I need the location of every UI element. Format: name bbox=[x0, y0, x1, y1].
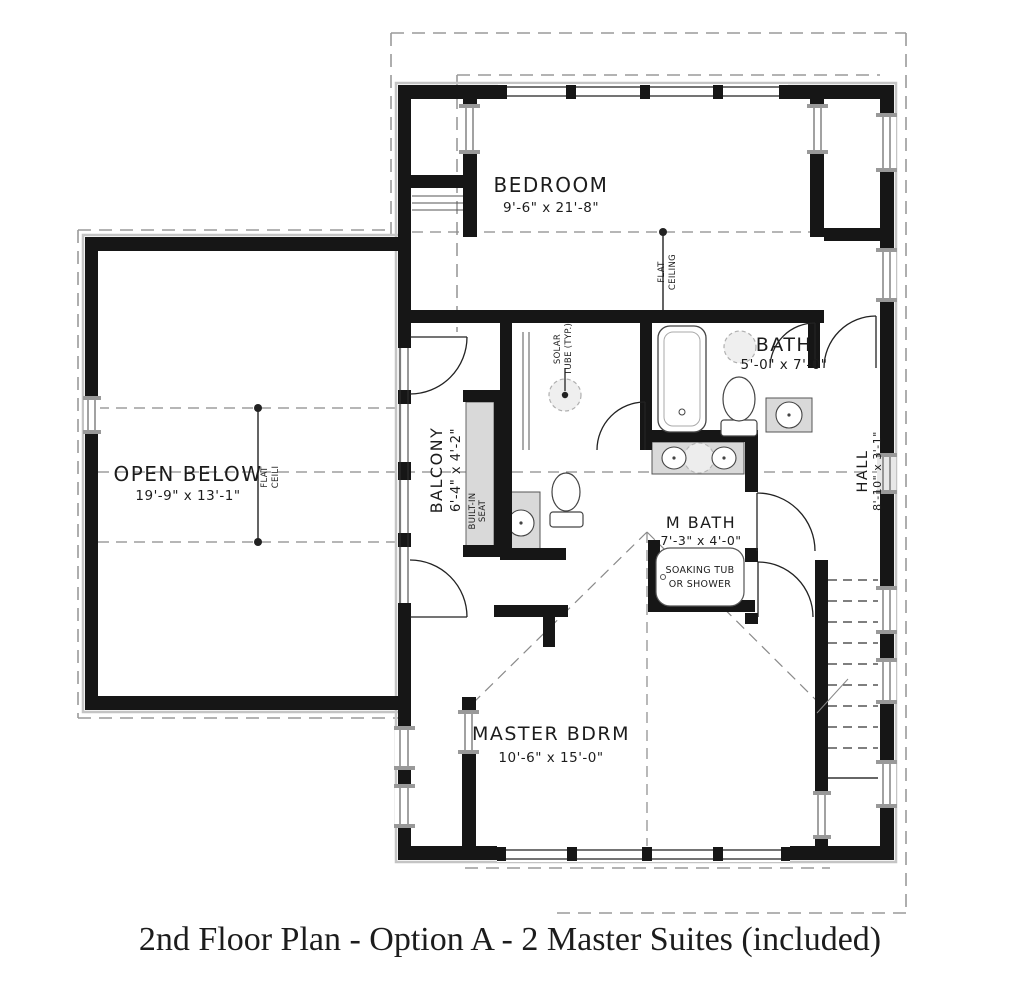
bedroom-dims: 9'-6" x 21'-8" bbox=[503, 200, 599, 216]
balcony-dims: 6'-4" x 4'-2" bbox=[449, 428, 464, 512]
window bbox=[876, 113, 897, 172]
toilet-symbol bbox=[550, 473, 583, 527]
window bbox=[876, 760, 897, 808]
m-bath-dims: 7'-3" x 4'-0" bbox=[660, 533, 741, 548]
window bbox=[394, 726, 415, 770]
floor-plan-page: BEDROOM 9'-6" x 21'-8" BATH 5'-0" x 7'-0… bbox=[0, 0, 1024, 997]
mbath-double-vanity bbox=[652, 442, 744, 474]
bathtub-symbol bbox=[658, 326, 706, 432]
floor-plan-canvas: BEDROOM 9'-6" x 21'-8" BATH 5'-0" x 7'-0… bbox=[0, 0, 1024, 997]
window bbox=[459, 104, 480, 154]
door bbox=[410, 560, 467, 617]
wall-segment bbox=[85, 696, 398, 710]
bath-vanity-sink bbox=[766, 398, 812, 432]
door bbox=[758, 562, 813, 617]
wall-segment bbox=[85, 237, 98, 710]
thin-partition bbox=[523, 332, 529, 450]
balcony-label: BALCONY bbox=[427, 427, 446, 514]
window bbox=[394, 784, 415, 828]
plan-caption: 2nd Floor Plan - Option A - 2 Master Sui… bbox=[139, 921, 881, 958]
flat-ceili-label-1: FLAT bbox=[260, 466, 270, 488]
hall-dims: 8'-10" x 3'-1" bbox=[871, 431, 884, 511]
wall-segment bbox=[85, 237, 398, 251]
master-bdrm-dims: 10'-6" x 15'-0" bbox=[498, 750, 603, 766]
soaking-tub-label-2: OR SHOWER bbox=[669, 579, 732, 590]
window bbox=[876, 248, 897, 302]
hall-label: HALL bbox=[855, 450, 871, 493]
bath-dims: 5'-0" x 7'-0" bbox=[740, 357, 827, 373]
wall-segment bbox=[398, 85, 411, 337]
door bbox=[757, 493, 815, 551]
flat-ceiling-label-2: CEILING bbox=[668, 254, 678, 290]
m-bath-label: M BATH bbox=[666, 513, 736, 532]
built-in-seat-label-1: BUILT-IN bbox=[468, 493, 478, 530]
window bbox=[813, 791, 831, 839]
window bbox=[83, 396, 101, 434]
solar-tube-label-1: SOLAR bbox=[553, 334, 563, 364]
soaking-tub-symbol bbox=[656, 548, 744, 606]
solar-tube-symbol bbox=[684, 443, 714, 473]
open-below-label: OPEN BELOW bbox=[113, 462, 262, 486]
soaking-tub-label-1: SOAKING TUB bbox=[666, 565, 735, 576]
flat-ceili-label-2: CEILI bbox=[271, 466, 281, 489]
toilet-symbol bbox=[721, 377, 757, 436]
built-in-seat-label-2: SEAT bbox=[478, 499, 488, 522]
window bbox=[876, 658, 897, 704]
bath-label: BATH bbox=[756, 334, 812, 356]
closet-shelf-lines bbox=[412, 196, 463, 210]
master-bdrm-label: MASTER BDRM bbox=[472, 723, 630, 745]
door bbox=[824, 316, 876, 368]
window-band-south bbox=[497, 846, 790, 862]
solar-tube-label-2: TUBE (TYP.) bbox=[564, 323, 574, 376]
bedroom-label: BEDROOM bbox=[494, 173, 609, 197]
window-band-north bbox=[498, 84, 788, 100]
flat-ceiling-label-1: FLAT bbox=[657, 261, 667, 283]
window bbox=[807, 104, 828, 154]
open-below-dims: 19'-9" x 13'-1" bbox=[135, 488, 240, 504]
door bbox=[597, 402, 645, 450]
window bbox=[876, 586, 897, 634]
door bbox=[410, 337, 467, 394]
